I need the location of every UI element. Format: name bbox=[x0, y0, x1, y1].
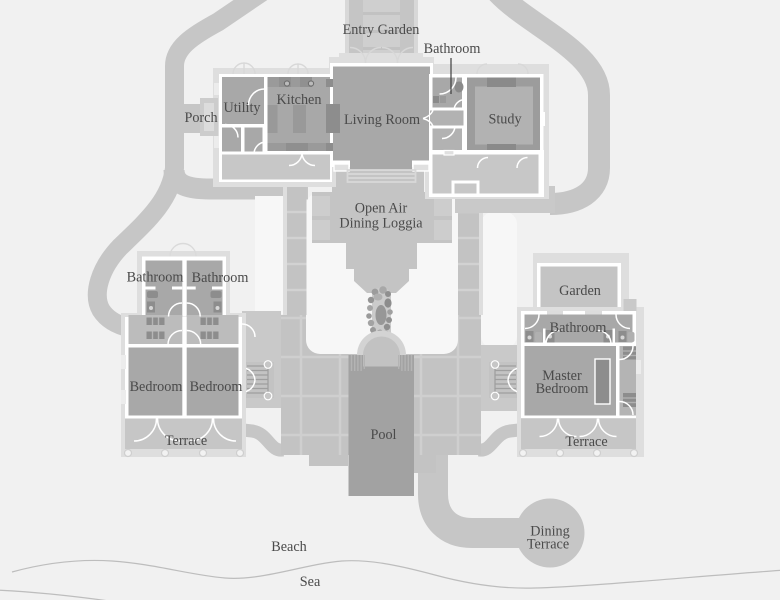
svg-text:Living Room: Living Room bbox=[344, 112, 420, 128]
svg-text:Bathroom: Bathroom bbox=[192, 270, 249, 286]
svg-text:Porch: Porch bbox=[184, 110, 217, 126]
svg-text:Bedroom: Bedroom bbox=[130, 379, 183, 395]
svg-text:Garden: Garden bbox=[559, 283, 601, 299]
svg-text:Bathroom: Bathroom bbox=[127, 270, 184, 286]
svg-text:Bathroom: Bathroom bbox=[550, 320, 607, 336]
svg-text:Bedroom: Bedroom bbox=[536, 381, 589, 397]
svg-text:Sea: Sea bbox=[300, 574, 321, 590]
svg-text:Bedroom: Bedroom bbox=[190, 379, 243, 395]
svg-text:Terrace: Terrace bbox=[527, 537, 569, 553]
svg-text:Utility: Utility bbox=[223, 100, 261, 116]
svg-text:Terrace: Terrace bbox=[565, 434, 607, 450]
svg-text:Pool: Pool bbox=[370, 427, 396, 443]
svg-text:Kitchen: Kitchen bbox=[277, 92, 322, 108]
svg-text:Study: Study bbox=[488, 112, 522, 128]
svg-text:Dining Loggia: Dining Loggia bbox=[339, 216, 423, 232]
svg-text:Entry Garden: Entry Garden bbox=[343, 22, 420, 38]
svg-text:Terrace: Terrace bbox=[165, 433, 207, 449]
svg-text:Bathroom: Bathroom bbox=[424, 41, 481, 57]
svg-text:Beach: Beach bbox=[271, 539, 306, 555]
svg-text:Open Air: Open Air bbox=[355, 201, 408, 217]
